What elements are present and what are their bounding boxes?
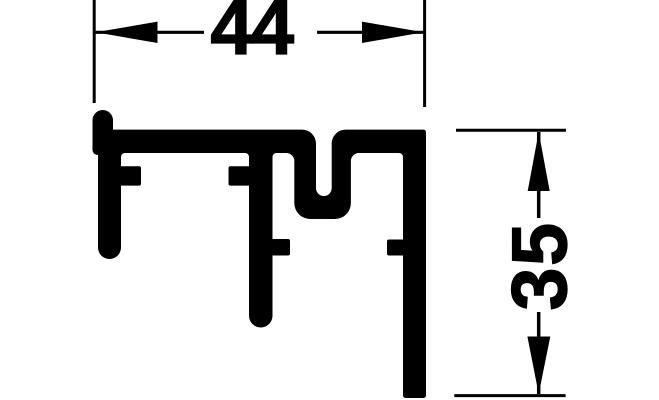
svg-text:44: 44	[210, 0, 294, 71]
svg-text:35: 35	[497, 221, 583, 310]
